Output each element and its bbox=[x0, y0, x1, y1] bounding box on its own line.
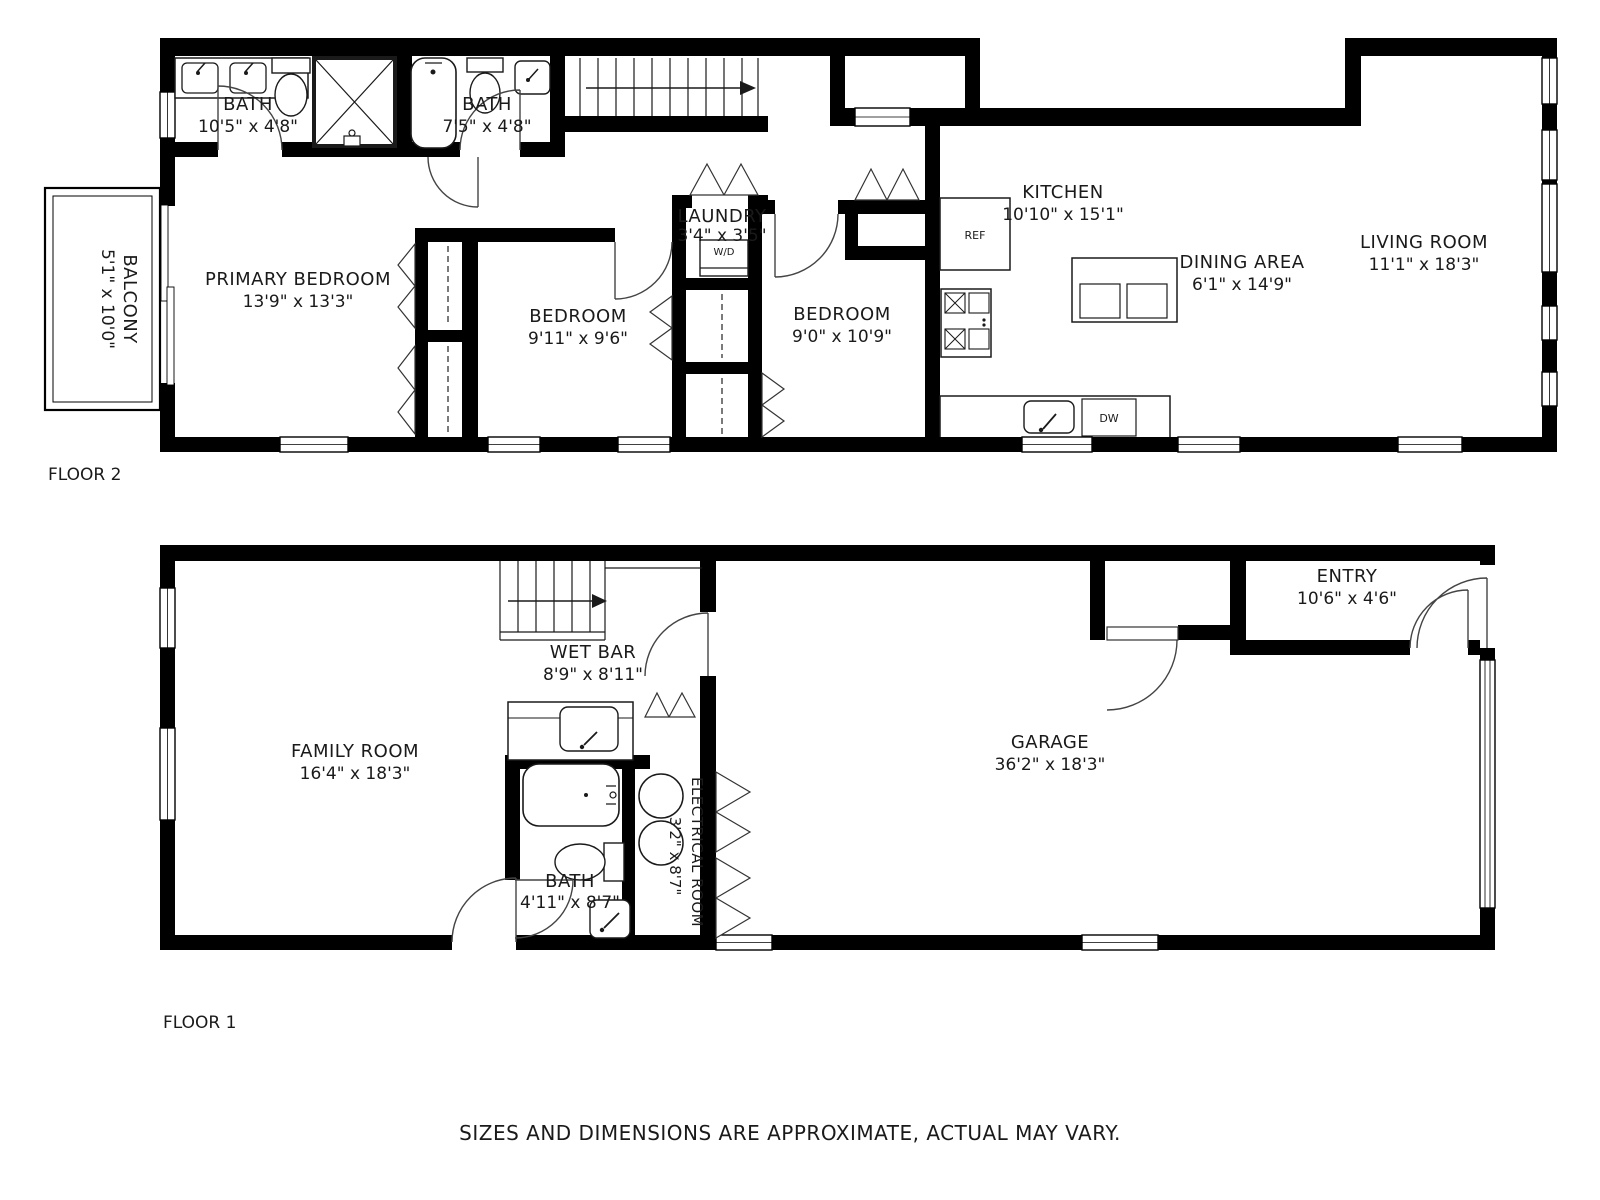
room-dims: 16'4" x 18'3" bbox=[300, 764, 411, 784]
chair bbox=[1080, 284, 1120, 318]
room-dims: 9'0" x 10'9" bbox=[792, 327, 892, 347]
water-heater bbox=[639, 774, 683, 818]
burner bbox=[969, 293, 989, 313]
room-name: BATH bbox=[223, 94, 273, 115]
floorplan-drawing: BATH 10'5" x 4'8" BATH 7'5" x 4'8" PRIMA… bbox=[0, 0, 1600, 1200]
tub-valve bbox=[610, 792, 616, 798]
toilet-bowl bbox=[275, 74, 307, 116]
disclaimer-text: SIZES AND DIMENSIONS ARE APPROXIMATE, AC… bbox=[459, 1121, 1121, 1145]
room-dims: 9'11" x 9'6" bbox=[528, 329, 628, 349]
stair-arrow-head bbox=[740, 81, 756, 95]
faucet-dot bbox=[196, 71, 200, 75]
room-dims: 6'1" x 14'9" bbox=[1192, 275, 1292, 295]
dishwasher-label: DW bbox=[1099, 412, 1118, 425]
room-name: GARAGE bbox=[1011, 732, 1089, 753]
room-dims: 3'2" x 8'7" bbox=[666, 817, 684, 896]
room-name: FAMILY ROOM bbox=[291, 741, 419, 762]
refrigerator-label: REF bbox=[965, 229, 986, 242]
room-dims: 10'10" x 15'1" bbox=[1002, 205, 1124, 225]
faucet-dot bbox=[1039, 428, 1043, 432]
room-name: PRIMARY BEDROOM bbox=[205, 269, 391, 290]
shower-drain bbox=[344, 136, 360, 146]
room-name: WET BAR bbox=[550, 642, 637, 663]
toilet-tank bbox=[604, 843, 624, 881]
dining-table bbox=[1072, 258, 1177, 322]
room-name: BATH bbox=[545, 871, 595, 892]
room-name: BEDROOM bbox=[793, 304, 890, 325]
garage-side-window bbox=[1480, 660, 1495, 908]
room-dims: 3'4" x 3'5" bbox=[677, 226, 766, 246]
faucet-dot bbox=[244, 71, 248, 75]
wetbar-sink bbox=[560, 707, 618, 751]
floor1-plan: FAMILY ROOM 16'4" x 18'3" WET BAR 8'9" x… bbox=[160, 545, 1495, 1033]
room-name: ELECTRICAL ROOM bbox=[688, 777, 706, 927]
tub-drain bbox=[584, 793, 588, 797]
stove-knob bbox=[982, 323, 985, 326]
room-name: DINING AREA bbox=[1179, 252, 1304, 273]
washer-dryer-label: W/D bbox=[714, 247, 735, 258]
floor2-plan: BATH 10'5" x 4'8" BATH 7'5" x 4'8" PRIMA… bbox=[45, 38, 1557, 485]
room-dims: 36'2" x 18'3" bbox=[995, 755, 1106, 775]
closet-door-panel bbox=[1107, 627, 1178, 640]
faucet-dot bbox=[580, 745, 584, 749]
room-dims: 8'9" x 8'11" bbox=[543, 665, 643, 685]
room-dims: 13'9" x 13'3" bbox=[243, 292, 354, 312]
room-name: LAUNDRY bbox=[677, 206, 767, 227]
room-dims: 11'1" x 18'3" bbox=[1369, 255, 1480, 275]
room-dims: 4'11" x 8'7" bbox=[520, 893, 620, 913]
room-name: ENTRY bbox=[1317, 566, 1378, 587]
room-name: BALCONY bbox=[119, 254, 140, 344]
kitchen-sink bbox=[1024, 401, 1074, 433]
floor2-stairs bbox=[580, 58, 758, 116]
toilet-tank bbox=[272, 58, 310, 73]
room-dims: 7'5" x 4'8" bbox=[442, 117, 531, 137]
burner bbox=[969, 329, 989, 349]
floor-label: FLOOR 1 bbox=[163, 1013, 236, 1033]
floorplan-page: BATH 10'5" x 4'8" BATH 7'5" x 4'8" PRIMA… bbox=[0, 0, 1600, 1200]
room-dims: 10'5" x 4'8" bbox=[198, 117, 298, 137]
sink bbox=[515, 61, 550, 94]
room-dims: 10'6" x 4'6" bbox=[1297, 589, 1397, 609]
sliding-door-panel bbox=[167, 287, 174, 385]
wetbar-fixtures bbox=[508, 702, 633, 760]
floor1-stairs bbox=[500, 561, 702, 640]
room-dims: 5'1" x 10'0" bbox=[97, 249, 117, 349]
room-name: BATH bbox=[462, 94, 512, 115]
shower-valve bbox=[349, 130, 355, 136]
faucet-dot bbox=[600, 928, 604, 932]
chair bbox=[1127, 284, 1167, 318]
tub-drain bbox=[431, 70, 436, 75]
floor-label: FLOOR 2 bbox=[48, 465, 121, 485]
room-name: BEDROOM bbox=[529, 306, 626, 327]
bathtub bbox=[523, 764, 619, 826]
stove-knob bbox=[982, 318, 985, 321]
room-name: LIVING ROOM bbox=[1360, 232, 1488, 253]
room-name: KITCHEN bbox=[1022, 182, 1104, 203]
toilet-tank bbox=[467, 58, 503, 72]
faucet-dot bbox=[526, 78, 530, 82]
stair-treads bbox=[580, 58, 758, 116]
